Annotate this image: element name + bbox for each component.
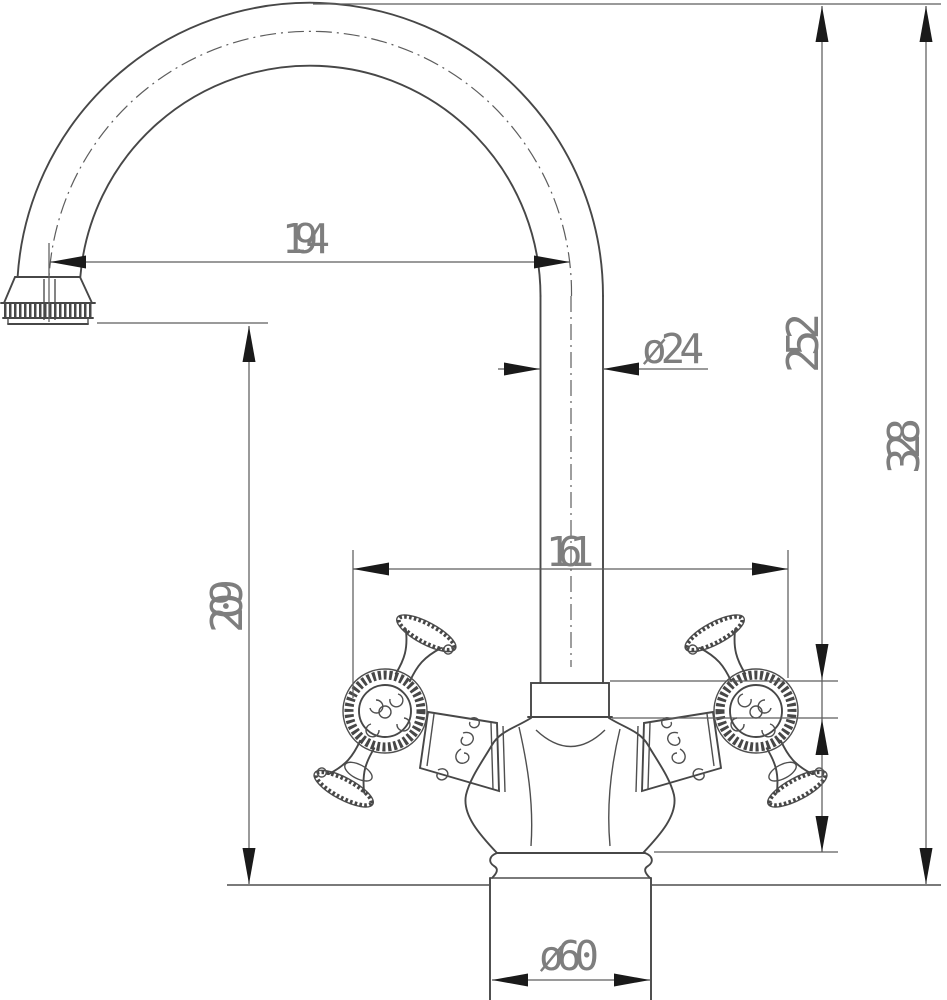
left-valve-stem bbox=[420, 712, 505, 792]
dim-spout-reach: 194 bbox=[50, 215, 570, 269]
dim-base-diameter: ø60 bbox=[492, 932, 650, 987]
body-neck-arc bbox=[536, 730, 605, 747]
spout-outlet bbox=[1, 243, 95, 324]
left-handle-knob bbox=[343, 669, 427, 753]
right-valve-stem bbox=[636, 712, 721, 792]
dim-base-diameter-label: ø60 bbox=[539, 932, 599, 980]
dim-handle-span-label: 161 bbox=[546, 528, 594, 576]
spout-gooseneck bbox=[18, 3, 603, 683]
right-handle-upper-arm bbox=[680, 608, 767, 693]
body-contour-left bbox=[519, 727, 532, 846]
faucet-technical-drawing: 194 ø24 161 209 252 328 bbox=[0, 0, 947, 1000]
stem-scroll-ornament bbox=[456, 732, 473, 763]
ref-dim-arrow bbox=[816, 719, 829, 755]
dim-spout-reach-label: 194 bbox=[282, 215, 330, 263]
dim-overall-height-label: 328 bbox=[879, 418, 930, 474]
stem-scroll-ornament bbox=[668, 732, 685, 763]
body-contour-right bbox=[609, 729, 620, 846]
dim-outlet-height-label: 209 bbox=[202, 579, 253, 633]
dim-spout-top-height-label: 252 bbox=[778, 313, 829, 373]
left-handle-upper-arm bbox=[374, 608, 461, 693]
spout-pipe bbox=[541, 296, 604, 683]
dim-handle-span: 161 bbox=[353, 528, 788, 576]
technical-drawing-canvas: 194 ø24 161 209 252 328 bbox=[0, 0, 947, 1000]
dim-outlet-height: 209 bbox=[202, 326, 256, 884]
dim-overall-height: 328 bbox=[879, 6, 933, 884]
dim-spout-tube-diameter-label: ø24 bbox=[642, 325, 704, 373]
right-handle bbox=[636, 608, 832, 814]
ref-dim-arrow bbox=[816, 816, 829, 852]
left-handle-lower-arm bbox=[309, 729, 396, 814]
collar-nut bbox=[528, 683, 612, 717]
left-handle bbox=[309, 608, 505, 814]
